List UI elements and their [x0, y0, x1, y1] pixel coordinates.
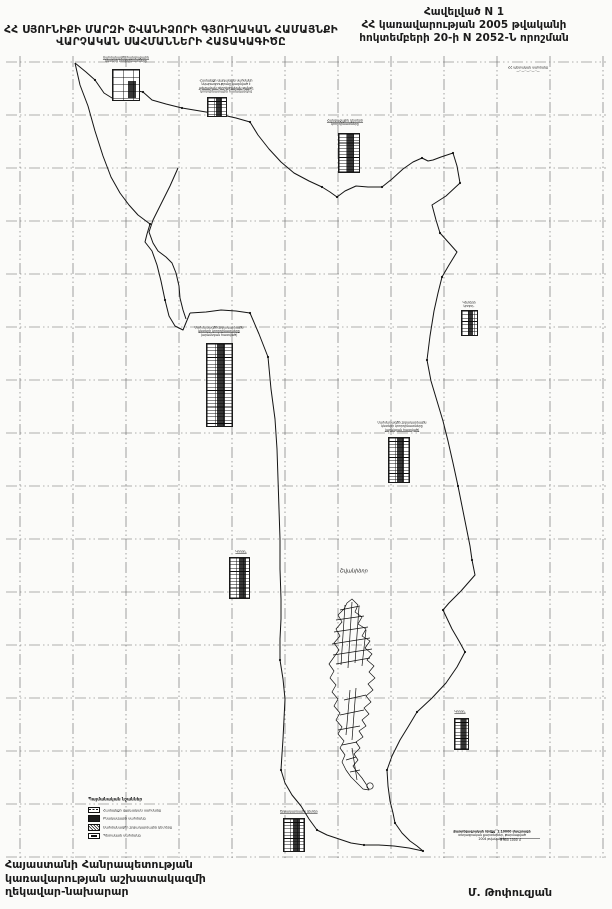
coord-table-6: [388, 437, 410, 483]
legend-title: Պայմանական նշաններ: [88, 797, 161, 802]
footer-line3: ղեկավար-նախարար: [5, 885, 285, 899]
note-text: կոորդինատները: [323, 123, 367, 127]
note-text: կոորդ.: [456, 305, 482, 309]
coord-table-1: [112, 69, 140, 101]
decree-line2: հոկտեմբերի 20-ի N 2052-Ն որոշման: [320, 32, 608, 45]
coord-table-12: [283, 818, 305, 852]
scale-bar: 0 500 1000 մ: [500, 838, 540, 846]
coord-table-2: [207, 97, 227, 117]
boundary-south: [317, 830, 423, 851]
note-text: կետերի կոորդինատները: [86, 60, 166, 64]
note-text: —··—··—··—··—: [498, 70, 558, 74]
note-text: Կոորդ.: [450, 710, 470, 714]
legend-item: Պետական սահմանը: [88, 832, 206, 839]
note-text: Կոորդ.: [228, 550, 254, 554]
village-label: Շվանիձոր: [340, 568, 380, 576]
legend-item: Սահմանագծի շրջադարձային կետերը: [88, 824, 206, 831]
scanned-map-page: { "page_title": "ՀՀ Սյունիքի մարզի Շվանի…: [0, 0, 612, 909]
page-title-line2: ՎԱՐՉԱԿԱՆ ՍԱՀՄԱՆՆԵՐԻ ՀԱՏԱԿԱԳԻԾԸ: [2, 36, 340, 48]
coord-table-5: [206, 343, 233, 427]
legend-item: Բնակավայրի սահմանը: [88, 815, 206, 822]
settlement-symbol-icon: [88, 815, 100, 822]
coord-note-10: Կոորդ.: [450, 710, 470, 717]
footer-line1: Հայաստանի Հանրապետության: [5, 858, 285, 872]
community-boundary: [75, 63, 475, 851]
page-title: ՀՀ ՍՅՈՒՆԻՔԻ ՄԱՐԶԻ ՇՎԱՆԻՁՈՐԻ ԳՅՈՒՂԱԿԱՆ ՀԱ…: [2, 24, 340, 48]
note-text: (արևելյան հատված): [368, 428, 436, 432]
map-canvas: [0, 0, 612, 909]
settlement-outline: [329, 599, 375, 790]
coord-table-10: [454, 718, 469, 750]
appendix-header: Հավելված N 1 ՀՀ կառավարության 2005 թվակա…: [320, 6, 608, 45]
turning-point-symbol-icon: [88, 824, 100, 831]
coord-table-9: [229, 557, 250, 599]
decree-line1: ՀՀ կառավարության 2005 թվականի: [320, 19, 608, 32]
boundary-west-upper: [75, 63, 190, 330]
coord-table-7: [461, 310, 478, 336]
note-text: կոորդինատային համակարգով: [186, 90, 266, 94]
coord-table-3: [338, 133, 360, 173]
appendix-number: Հավելված N 1: [320, 6, 608, 19]
note-text: Շրջադարձային կետեր: [280, 810, 326, 814]
signature-name: Մ. Թոփուզյան: [420, 886, 600, 900]
coord-note-12: Շրջադարձային կետեր: [280, 810, 326, 817]
footer-line2: կառավարության աշխատակազմի: [5, 872, 285, 886]
state-border-symbol-icon: [88, 833, 100, 840]
footer-signatory-title: Հայաստանի Հանրապետության կառավարության ա…: [5, 858, 285, 899]
inner-boundary-line: [149, 168, 186, 319]
legend-item: Համայնքի վարչական սահմանը: [88, 807, 206, 814]
page-title-line1: ՀՀ ՍՅՈՒՆԻՔԻ ՄԱՐԶԻ ՇՎԱՆԻՁՈՐԻ ԳՅՈՒՂԱԿԱՆ ՀԱ…: [2, 24, 340, 36]
boundary-symbol-icon: [88, 807, 100, 814]
map-legend: Պայմանական նշաններ Համայնքի վարչական սահ…: [88, 797, 206, 839]
coord-note-3: Հանգուցային կետերի կոորդինատները: [323, 119, 367, 134]
note-text: (արևմտյան հատված): [192, 333, 246, 337]
state-border-note: ՀՀ պետական սահմանը —··—··—··—··—: [498, 66, 558, 81]
map-grid: [6, 56, 606, 860]
